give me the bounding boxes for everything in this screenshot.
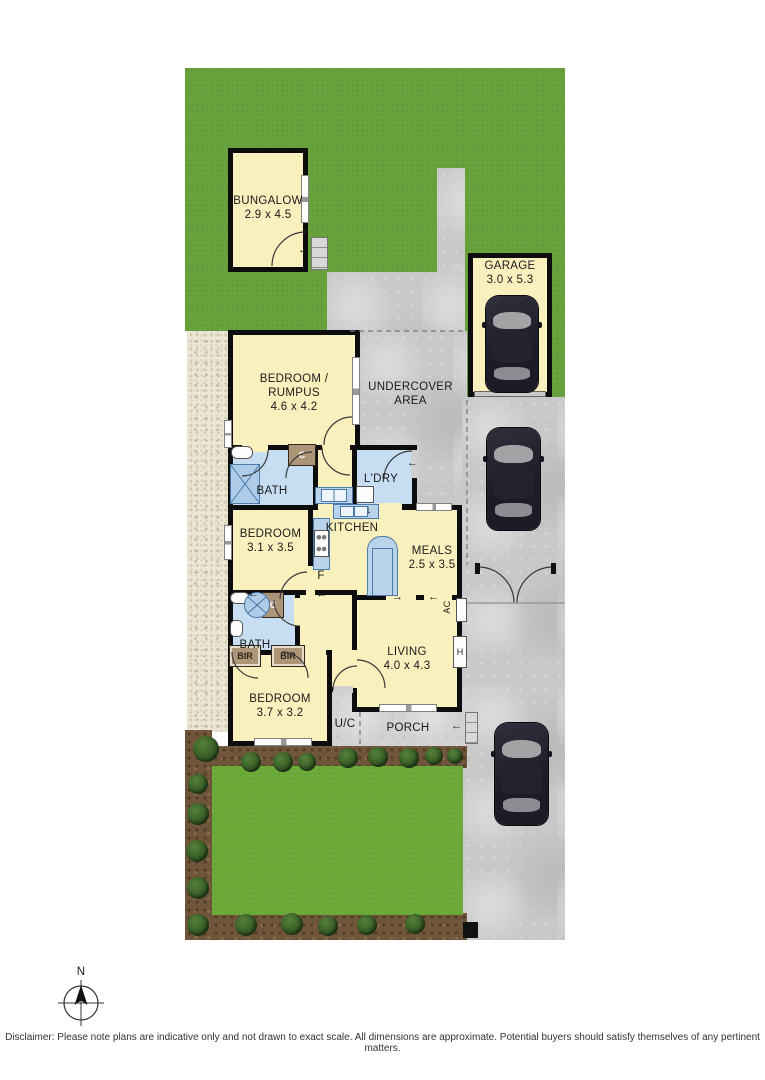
bush [318,916,338,936]
arrow-left-icon: ← [298,245,309,256]
car-garage [486,296,538,392]
porch-label: PORCH [368,721,448,735]
bungalow-label: BUNGALOW 2.9 x 4.5 [228,194,308,222]
car-mirror [483,456,488,462]
room-dims: 3.0 x 5.3 [468,273,552,287]
arrow-left-icon: ← [248,589,259,600]
arrow-left-icon: ← [451,721,462,732]
room-dims: 3.1 x 3.5 [228,541,313,555]
bush [235,914,257,936]
car-mirror [482,322,487,328]
car-mirror [537,322,542,328]
floor-plan: C C BIR BIR H [0,0,765,1080]
robe-label: BIR [280,651,296,661]
car-windshield [502,740,541,757]
window [254,738,312,746]
room-name: GARAGE [468,259,552,273]
bush [186,840,208,862]
garage-label: GARAGE 3.0 x 5.3 [468,259,552,287]
uc-label: U/C [330,717,360,731]
pebble-path [187,331,228,732]
bush [187,803,209,825]
lawn-corner-marker [463,922,478,938]
closet-c1: C [288,444,316,466]
living-label: LIVING 4.0 x 4.3 [367,645,447,673]
arrow-left-icon: ← [407,458,418,469]
room-name: BEDROOM [228,527,313,541]
closet-label: C [270,600,277,610]
bush [187,877,209,899]
bush [188,774,208,794]
heater-unit: H [453,636,467,668]
arrow-right-icon: → [392,592,403,603]
room-name: BEDROOM / [230,372,358,386]
meals-label: MEALS 2.5 x 3.5 [392,544,472,572]
laundry-label: L'DRY [349,472,413,486]
basin [230,620,243,637]
heater-label: H [457,647,464,657]
car-windshield [493,312,531,328]
robe-label: BIR [237,651,253,661]
bush [281,913,303,935]
room-name: BEDROOM [228,692,332,706]
car-mirror [547,751,552,757]
room-name: BUNGALOW [228,194,308,208]
bush [193,736,219,762]
kitchen-sink [340,506,368,517]
area-name: UNDERCOVER [358,380,463,394]
kitchen-sink [321,489,347,502]
disclaimer-text: Disclaimer: Please note plans are indica… [0,1032,765,1054]
bush [273,752,293,772]
door-opening [351,650,359,688]
rear-door-opening [333,686,353,693]
toilet [231,446,253,459]
room-dims: 4.0 x 4.3 [367,659,447,673]
car-rear-window [494,367,530,379]
arrow-left-icon: ← [316,589,327,600]
lawn-front [212,766,463,915]
north-arrow-icon [75,985,88,1005]
car-roof [493,466,534,500]
car-mirror [539,456,544,462]
car-rear-window [495,503,532,516]
room-dims: 3.7 x 3.2 [228,706,332,720]
car-windshield [494,445,533,462]
window [379,704,437,712]
compass-north-label: N [66,965,96,979]
bedroom2-label: BEDROOM 3.1 x 3.5 [228,527,313,555]
room-dims: 2.9 x 4.5 [228,208,308,222]
window [224,420,232,448]
car-roof [501,761,542,795]
closet-label: C [299,450,306,460]
window [416,503,452,511]
car-mirror [491,751,496,757]
bedroom-rumpus-label: BEDROOM / RUMPUS 4.6 x 4.2 [230,372,358,414]
bath2-label: BATH [231,638,279,652]
bush [187,914,209,936]
undercover-label: UNDERCOVER AREA [358,380,463,408]
car-rear-window [503,798,540,811]
laundry-trough [356,486,374,503]
bush [405,914,425,934]
porch-steps [465,712,478,744]
bush [447,748,463,764]
bush [399,748,419,768]
car-roof [492,332,533,364]
bush [298,753,316,771]
car-driveway-2 [495,723,548,825]
bungalow-steps [311,237,328,270]
arrow-down-icon: ↓ [366,505,372,516]
island-inner-line [372,548,393,596]
bush [425,747,443,765]
door-opening [378,503,402,512]
room-dims: 2.5 x 3.5 [392,558,472,572]
bush [357,915,377,935]
bath1-label: BATH [240,484,304,498]
door-opening [322,444,350,452]
door-opening [294,598,302,626]
kitchen-label: KITCHEN [312,521,392,535]
car-driveway-1 [487,428,540,530]
ac-text: AC [442,598,452,616]
compass-icon [54,978,108,1032]
courtyard-concrete [327,272,465,333]
area-name: AREA [358,394,463,408]
fridge-label: F [314,569,328,583]
room-name: LIVING [367,645,447,659]
room-name: MEALS [392,544,472,558]
ac-unit [456,598,467,622]
ac-label: AC [438,602,456,618]
bush [338,748,358,768]
bush [368,747,388,767]
bedroom3-label: BEDROOM 3.7 x 3.2 [228,692,332,720]
room-name: RUMPUS [230,386,358,400]
room-dims: 4.6 x 4.2 [230,400,358,414]
bush [241,752,261,772]
